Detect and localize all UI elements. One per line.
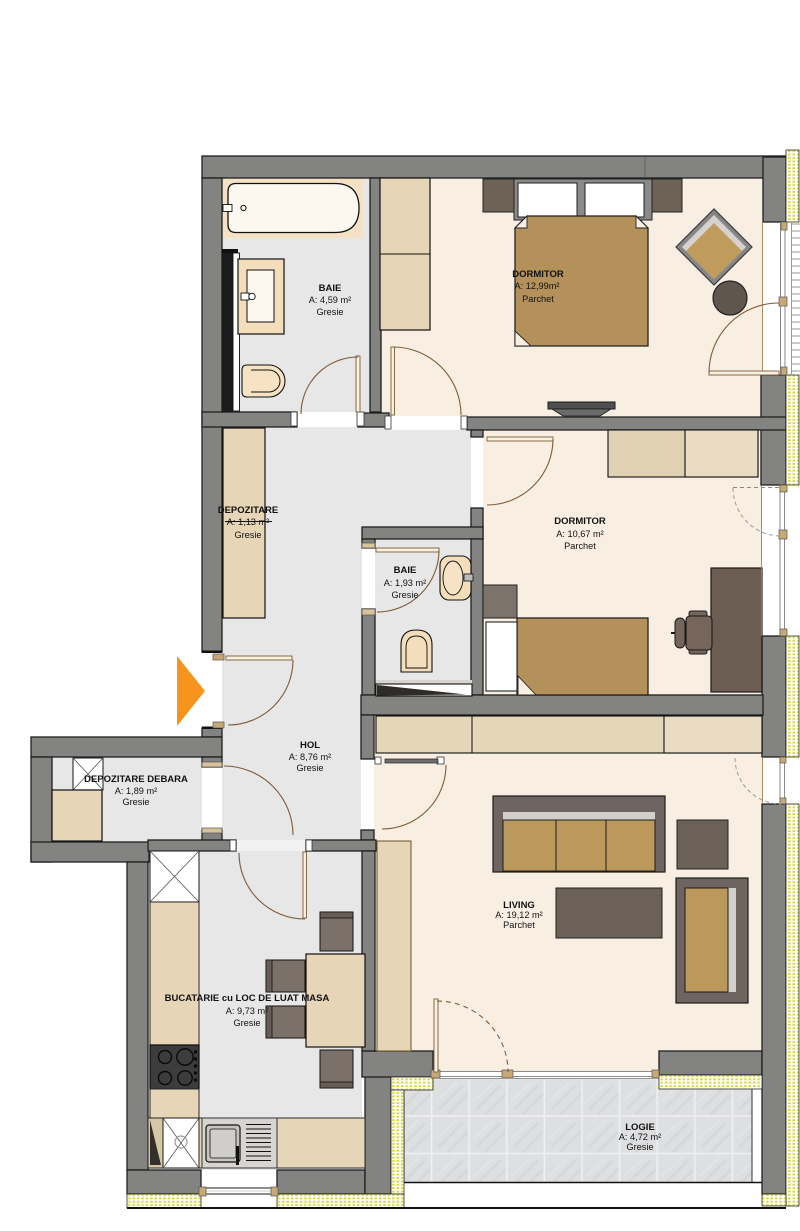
svg-text:DEPOZITARE: DEPOZITARE (218, 505, 279, 516)
svg-text:Gresie: Gresie (122, 797, 149, 807)
svg-text:Parchet: Parchet (564, 541, 596, 551)
svg-text:BAIE: BAIE (394, 565, 417, 576)
svg-text:A: 8,76 m²: A: 8,76 m² (289, 752, 331, 762)
svg-text:DORMITOR: DORMITOR (512, 269, 564, 280)
svg-text:HOL: HOL (300, 740, 320, 751)
svg-text:Parchet: Parchet (522, 294, 554, 304)
svg-text:A: 1,93 m²: A: 1,93 m² (384, 578, 426, 588)
svg-text:Gresie: Gresie (626, 1142, 653, 1152)
svg-text:A: 9,73 m²: A: 9,73 m² (226, 1006, 268, 1016)
svg-text:DEPOZITARE DEBARA: DEPOZITARE DEBARA (84, 774, 188, 785)
svg-text:Gresie: Gresie (234, 530, 261, 540)
svg-text:A: 4,59 m²: A: 4,59 m² (309, 295, 351, 305)
svg-text:Gresie: Gresie (296, 763, 323, 773)
svg-text:A: 12,99m²: A: 12,99m² (515, 281, 560, 291)
svg-text:BAIE: BAIE (319, 283, 342, 294)
svg-text:A: 4,72 m²: A: 4,72 m² (619, 1132, 661, 1142)
svg-text:Gresie: Gresie (233, 1018, 260, 1028)
svg-text:Gresie: Gresie (316, 307, 343, 317)
svg-text:BUCATARIE cu LOC DE LUAT MASA: BUCATARIE cu LOC DE LUAT MASA (165, 993, 330, 1004)
svg-text:A: 10,67 m²: A: 10,67 m² (556, 529, 604, 539)
svg-text:A: 19,12 m²: A: 19,12 m² (495, 910, 543, 920)
svg-text:Parchet: Parchet (503, 920, 535, 930)
svg-text:A: 1,89 m²: A: 1,89 m² (115, 786, 157, 796)
svg-text:Gresie: Gresie (391, 590, 418, 600)
svg-text:DORMITOR: DORMITOR (554, 516, 606, 527)
